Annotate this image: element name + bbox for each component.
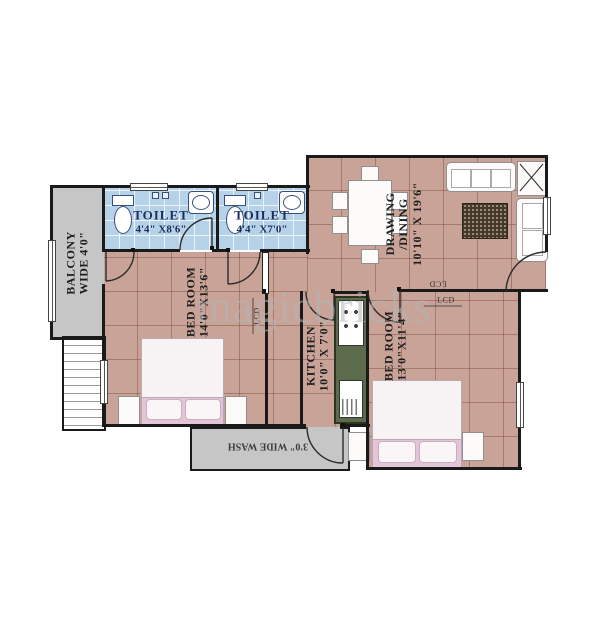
drawing-dining-label: DRAWING /DINING 10'10" X 19'6" — [384, 182, 424, 266]
toilet2-label: TOILET 4'4" X7'0" — [234, 209, 290, 236]
wash-door-arc — [307, 427, 343, 463]
lcd-text: LCD — [429, 279, 447, 288]
balcony-door-arc — [106, 252, 134, 281]
door-pivots — [131, 246, 401, 427]
room-name: BALCONY — [65, 231, 78, 295]
room-name-2: /DINING — [397, 182, 410, 266]
watermark: magicbricks — [196, 280, 432, 333]
entrance-door-arc — [506, 252, 546, 292]
lcd-text: LCD — [437, 297, 455, 306]
room-name: DRAWING — [384, 182, 397, 266]
lcd-label-drawing: LCD — [429, 279, 447, 288]
lcd-label-bedroom2: LCD — [437, 297, 455, 306]
floor-plan: BALCONY WIDE 4'0" TOILET 4'4" X8'6" TOIL… — [0, 0, 600, 617]
room-dim: 4'4" X7'0" — [234, 223, 290, 235]
room-dim: WIDE 4'0" — [78, 231, 91, 295]
room-dim: 4'4" X8'6" — [133, 223, 189, 235]
wash-label: 3'0" WIDE WASH — [228, 440, 308, 451]
room-name: TOILET — [133, 209, 189, 224]
corner-table-x — [520, 164, 543, 191]
balcony-label: BALCONY WIDE 4'0" — [65, 231, 92, 295]
room-name: 3'0" WIDE WASH — [228, 440, 308, 451]
toilet1-label: TOILET 4'4" X8'6" — [133, 209, 189, 236]
room-dim: 10'10" X 19'6" — [411, 182, 424, 266]
room-name: TOILET — [234, 209, 290, 224]
